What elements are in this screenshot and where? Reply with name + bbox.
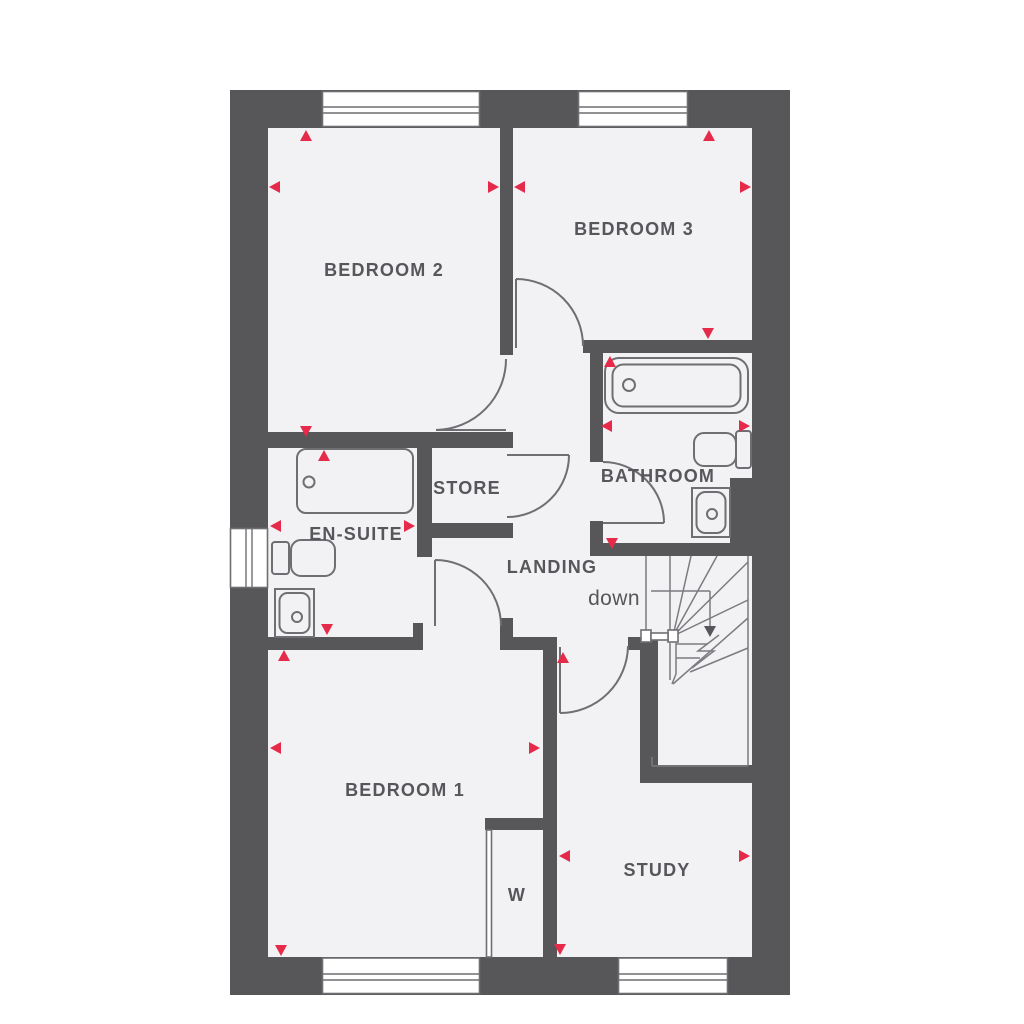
room-label-bathroom: BATHROOM [601, 466, 715, 486]
floor-plan: BEDROOM 2 BEDROOM 3 BATHROOM EN-SUITE ST… [0, 0, 1024, 1024]
room-label-wardrobe: W [508, 885, 526, 905]
wardrobe-partition [487, 830, 492, 957]
window-bedroom3 [579, 92, 688, 127]
stair-handrail [651, 633, 668, 640]
stair-newel-post [641, 630, 651, 642]
stair-newel-post [668, 630, 678, 642]
room-label-bedroom3: BEDROOM 3 [574, 219, 694, 239]
floor-plan-page: BEDROOM 2 BEDROOM 3 BATHROOM EN-SUITE ST… [0, 0, 1024, 1024]
room-label-landing: LANDING [507, 557, 597, 577]
room-label-ensuite: EN-SUITE [309, 524, 403, 544]
room-label-store: STORE [433, 478, 501, 498]
room-label-study: STUDY [623, 860, 690, 880]
window-bedroom2 [323, 92, 480, 127]
window-bedroom1 [323, 958, 480, 994]
window-ensuite [231, 529, 268, 588]
window-study [619, 958, 728, 994]
stairs-direction-label: down [588, 587, 640, 610]
room-label-bedroom2: BEDROOM 2 [324, 260, 444, 280]
room-label-bedroom1: BEDROOM 1 [345, 780, 465, 800]
